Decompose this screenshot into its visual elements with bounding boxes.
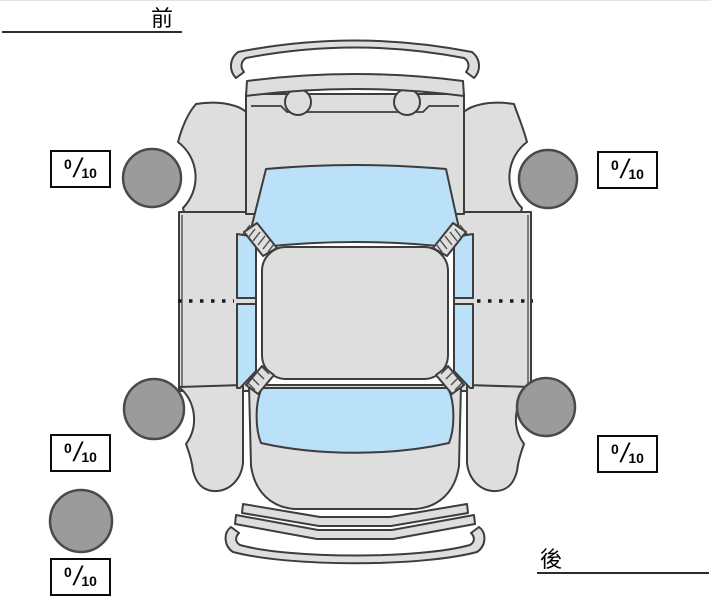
rating-slash: / <box>74 563 82 590</box>
rating-value: 0 <box>611 157 619 173</box>
car-top-view-illustration <box>0 1 711 601</box>
tire-rating-front-right: 0 / 10 <box>597 151 658 189</box>
rating-value: 0 <box>611 441 619 457</box>
tire-rear-left-icon <box>124 379 184 439</box>
rating-denominator: 10 <box>81 449 97 465</box>
rating-denominator: 10 <box>628 166 644 182</box>
rear-window <box>257 388 454 453</box>
headlight-right <box>394 89 420 115</box>
rating-value: 0 <box>64 564 72 580</box>
tire-spare-icon <box>50 490 112 552</box>
rating-value: 0 <box>64 440 72 456</box>
tire-rating-spare: 0 / 10 <box>50 558 111 596</box>
front-bumper <box>231 41 479 79</box>
rating-denominator: 10 <box>81 573 97 589</box>
vehicle-condition-diagram: 前 <box>0 0 711 601</box>
rating-slash: / <box>74 439 82 466</box>
rear-direction-label: 後 <box>537 544 709 574</box>
tire-front-left-icon <box>123 149 181 207</box>
front-cowl-strip <box>246 74 464 96</box>
tire-rating-rear-right: 0 / 10 <box>597 435 658 473</box>
rating-denominator: 10 <box>81 165 97 181</box>
rear-label-text: 後 <box>540 548 563 572</box>
tire-front-right-icon <box>519 150 577 208</box>
front-fender-left <box>178 103 247 212</box>
tire-rating-rear-left: 0 / 10 <box>50 434 111 472</box>
headlight-left <box>285 89 311 115</box>
tire-rating-front-left: 0 / 10 <box>50 150 111 188</box>
front-fender-right <box>463 103 527 212</box>
windshield <box>250 165 460 247</box>
rating-slash: / <box>621 156 629 183</box>
rear-fender-left <box>179 385 243 491</box>
rating-value: 0 <box>64 156 72 172</box>
tire-rear-right-icon <box>517 378 575 436</box>
rating-slash: / <box>621 440 629 467</box>
roof <box>262 247 448 379</box>
rating-slash: / <box>74 155 82 182</box>
rating-denominator: 10 <box>628 450 644 466</box>
